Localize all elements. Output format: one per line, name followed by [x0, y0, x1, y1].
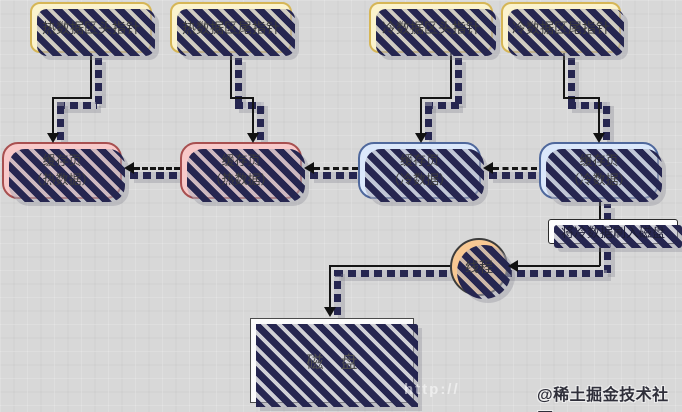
lru-cache-diagram: 热数据区头指针 热数据区尾指针 冷数据区头指针 冷数据区尾指针 缓存页 （热数据…: [0, 0, 682, 412]
cache-page-title: 缓存页: [221, 152, 260, 171]
hot-head-pointer-label: 热数据区头指针: [42, 18, 140, 38]
hot-tail-pointer-box: 热数据区尾指针: [170, 2, 292, 53]
juejin-watermark: @稀土掘金技术社区: [537, 381, 682, 412]
disk-node: 磁 盘: [250, 318, 414, 403]
connector-line: [563, 53, 565, 99]
connector-line: [450, 53, 452, 99]
hot-head-pointer-box: 热数据区头指针: [30, 2, 152, 53]
list-link-line: [134, 167, 180, 170]
connector-line: [52, 97, 92, 99]
connector-line: [230, 97, 254, 99]
flush-annotation: 将冷数据刷入磁盘: [548, 219, 678, 244]
connector-line: [563, 97, 600, 99]
arrowhead-down: [324, 307, 336, 317]
cache-page-hot-2: 缓存页 （热数据）: [180, 142, 302, 199]
thread-node: 线程: [450, 238, 508, 296]
connector-line: [52, 97, 54, 133]
flush-path-line: [329, 265, 331, 307]
cold-tail-pointer-box: 冷数据区尾指针: [501, 2, 621, 53]
cache-page-title: 缓存页: [579, 152, 618, 171]
list-link-line: [493, 167, 537, 170]
cache-page-subtitle: （热数据）: [208, 171, 273, 190]
cache-page-subtitle: （冷数据）: [387, 171, 452, 190]
arrowhead-down: [247, 133, 259, 143]
arrowhead-down: [47, 133, 59, 143]
flush-annotation-label: 将冷数据刷入磁盘: [561, 222, 665, 241]
cache-page-cold-2: 缓存页 （冷数据）: [539, 142, 659, 199]
thread-label: 线程: [465, 257, 493, 277]
faint-url-watermark: http://: [404, 381, 460, 398]
connector-line: [252, 97, 254, 133]
cache-page-title: 缓存页: [400, 152, 439, 171]
arrowhead-down: [415, 133, 427, 143]
cache-page-subtitle: （冷数据）: [566, 171, 631, 190]
cache-page-subtitle: （热数据）: [29, 171, 94, 190]
connector-shadow: [568, 102, 607, 109]
connector-line: [420, 97, 422, 133]
arrowhead-left: [124, 162, 134, 174]
cold-head-pointer-label: 冷数据区头指针: [382, 18, 480, 38]
arrowhead-left: [483, 162, 493, 174]
connector-shadow: [95, 58, 102, 104]
connector-shadow: [455, 58, 462, 104]
connector-line: [598, 97, 600, 133]
cache-page-title: 缓存页: [42, 152, 81, 171]
arrowhead-left: [304, 162, 314, 174]
list-link-line: [314, 167, 358, 170]
cache-page-cold-1: 缓存页 （冷数据）: [358, 142, 481, 199]
arrowhead-down: [593, 133, 605, 143]
connector-shadow: [489, 172, 541, 179]
disk-label: 磁 盘: [307, 348, 358, 373]
cold-tail-pointer-label: 冷数据区尾指针: [512, 18, 610, 38]
connector-line: [230, 53, 232, 99]
connector-line: [420, 97, 452, 99]
connector-line: [90, 53, 92, 99]
arrowhead-left: [508, 260, 518, 272]
connector-shadow: [130, 172, 184, 179]
cold-head-pointer-box: 冷数据区头指针: [369, 2, 493, 53]
hot-tail-pointer-label: 热数据区尾指针: [182, 18, 280, 38]
cache-page-hot-1: 缓存页 （热数据）: [2, 142, 122, 199]
connector-shadow: [310, 172, 362, 179]
